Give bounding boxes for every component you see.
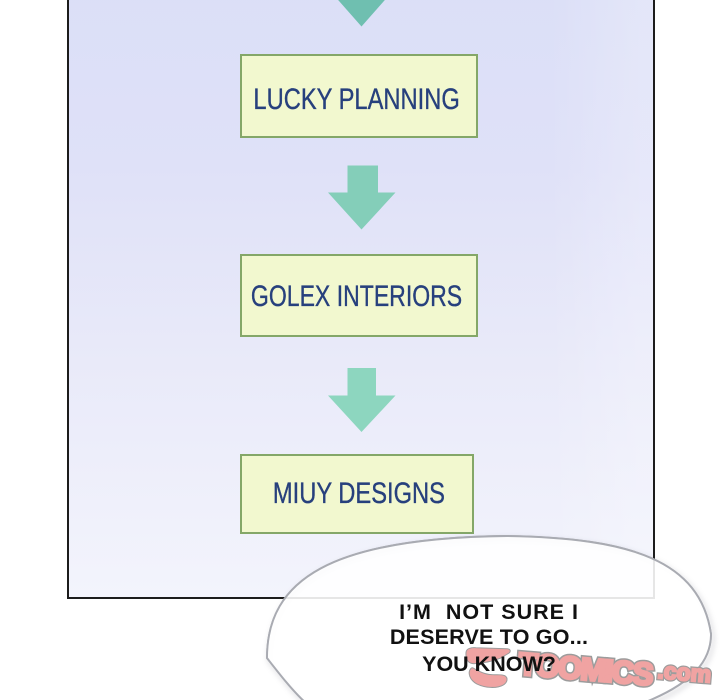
svg-text:.com: .com	[657, 657, 713, 687]
